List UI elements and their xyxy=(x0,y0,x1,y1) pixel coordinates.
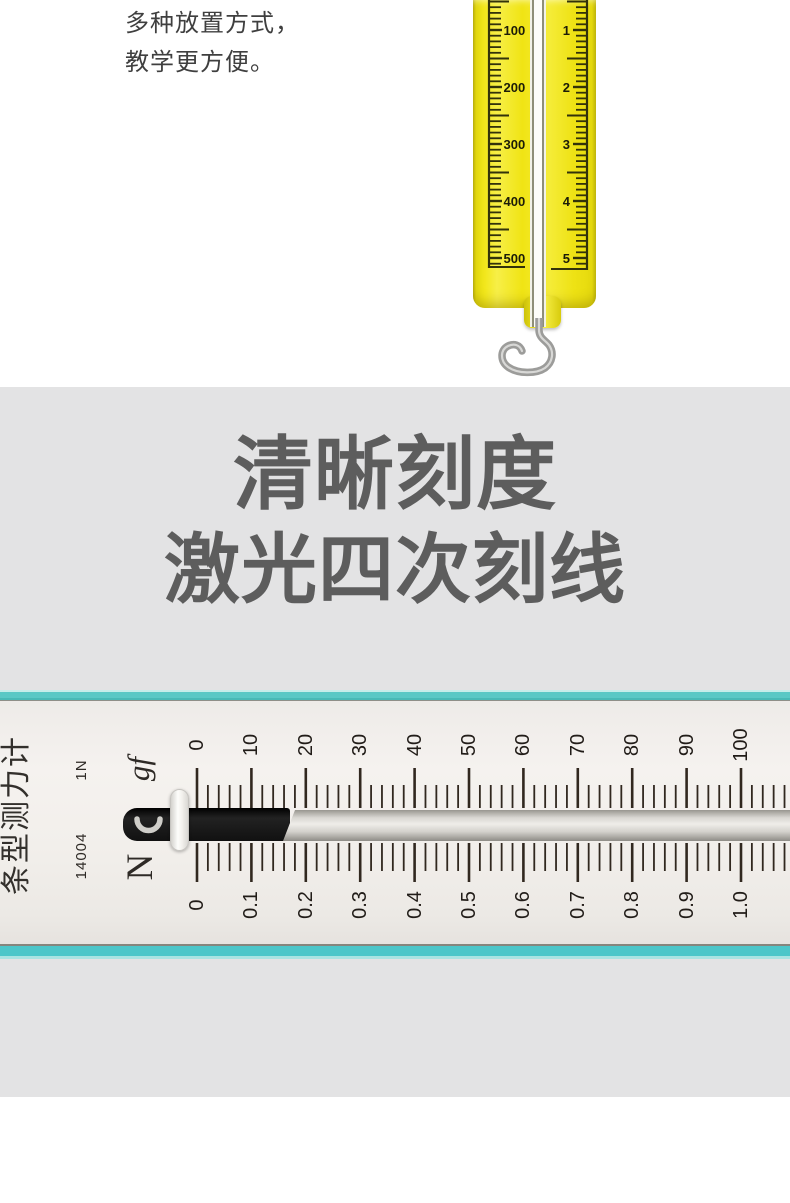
pointer-disc xyxy=(170,789,189,851)
yellow-scale-right-label: 3 xyxy=(563,137,570,152)
gf-scale-label: 20 xyxy=(296,722,316,768)
yellow-scale-right-label: 2 xyxy=(563,80,570,95)
n-scale-label: 0.8 xyxy=(621,877,643,933)
gf-scale-label: 10 xyxy=(241,722,261,768)
spring-rod xyxy=(283,810,790,841)
product-detail-page: 多种放置方式， 教学更方便。 10012002300340045005 清晰刻度… xyxy=(0,0,790,1203)
headline-line-2: 激光四次刻线 xyxy=(0,526,790,616)
n-scale-label: 0.4 xyxy=(404,877,426,933)
n-scale-label: 0.9 xyxy=(676,877,698,933)
yellow-scale-left-label: 300 xyxy=(504,137,526,152)
gf-scale-label: 50 xyxy=(459,722,479,768)
gf-scale-label: 90 xyxy=(677,722,697,768)
gf-scale-label: 40 xyxy=(405,722,425,768)
n-scale-label: 0 xyxy=(186,877,208,933)
yellow-scale-left-label: 200 xyxy=(504,80,526,95)
yellow-scale-left-label: 400 xyxy=(504,194,526,209)
scale-rod xyxy=(530,0,546,327)
n-scale-label: 0.6 xyxy=(512,877,534,933)
hook-icon xyxy=(486,318,570,384)
gf-scale-label: 100 xyxy=(731,722,751,768)
zero-clip-icon xyxy=(127,810,171,840)
yellow-scale-right-label: 1 xyxy=(563,23,570,38)
unit-n-label: N xyxy=(121,845,161,889)
meter-name: 条型测力计 xyxy=(0,735,35,895)
n-scale-label: 0.7 xyxy=(567,877,589,933)
gf-scale-label: 80 xyxy=(622,722,642,768)
gf-scale-label: 60 xyxy=(513,722,533,768)
gf-scale-label: 0 xyxy=(187,722,207,768)
force-meter-photo: 条型测力计 1N 14004 gf N 01020304050607080901… xyxy=(0,690,790,960)
meter-model: 14004 xyxy=(74,826,90,886)
meter-capacity: 1N xyxy=(74,753,90,787)
yellow-scale-right-label: 5 xyxy=(563,251,570,266)
n-scale-label: 0.1 xyxy=(240,877,262,933)
n-scale-label: 0.5 xyxy=(458,877,480,933)
gf-scale-label: 70 xyxy=(568,722,588,768)
unit-gf-label: gf xyxy=(121,745,157,793)
n-scale-label: 0.2 xyxy=(295,877,317,933)
n-scale-label: 1.0 xyxy=(730,877,752,933)
headline-line-1: 清晰刻度 xyxy=(0,430,790,520)
n-scale-label: 0.3 xyxy=(349,877,371,933)
gf-scale-label: 30 xyxy=(350,722,370,768)
yellow-scale-right-label: 4 xyxy=(563,194,571,209)
yellow-scale-left-label: 100 xyxy=(504,23,526,38)
yellow-scale-left-label: 500 xyxy=(504,251,526,266)
yellow-spring-scale: 10012002300340045005 xyxy=(0,0,790,387)
